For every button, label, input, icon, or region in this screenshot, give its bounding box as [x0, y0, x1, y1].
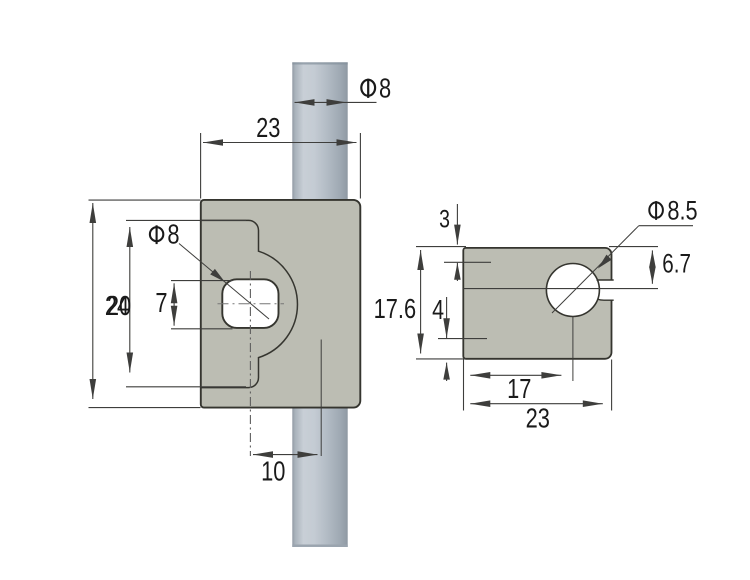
svg-text:17.6: 17.6 — [374, 294, 416, 325]
svg-text:8: 8 — [167, 219, 179, 250]
svg-text:23: 23 — [256, 113, 280, 144]
svg-text:8.5: 8.5 — [667, 197, 697, 227]
svg-text:23: 23 — [526, 403, 550, 434]
svg-text:10: 10 — [261, 456, 285, 487]
svg-text:8: 8 — [379, 73, 391, 104]
svg-text:7: 7 — [155, 288, 167, 319]
svg-text:6.7: 6.7 — [662, 249, 691, 279]
svg-text:4: 4 — [432, 295, 444, 325]
svg-text:3: 3 — [439, 205, 450, 233]
svg-text:20: 20 — [107, 290, 131, 321]
svg-text:17: 17 — [507, 374, 531, 405]
